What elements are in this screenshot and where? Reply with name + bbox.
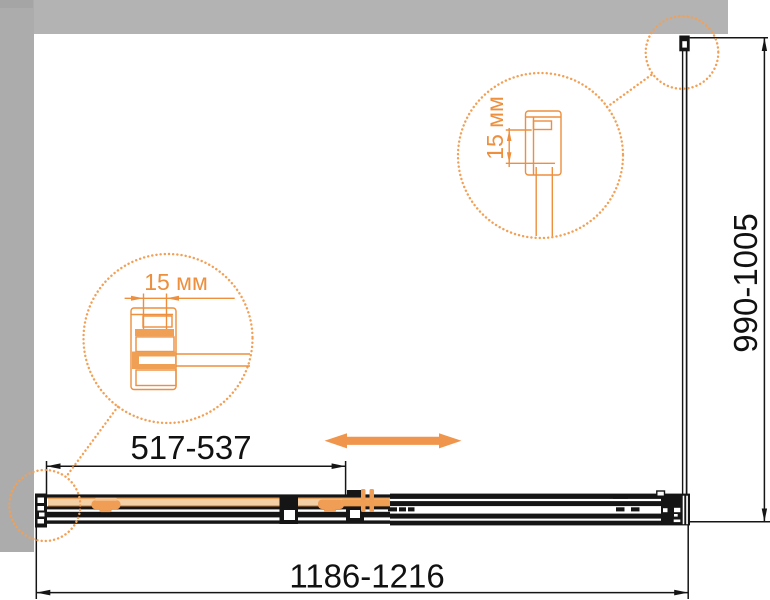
svg-text:990-1005: 990-1005 bbox=[727, 213, 764, 352]
svg-text:15 мм: 15 мм bbox=[482, 96, 508, 160]
svg-text:1186-1216: 1186-1216 bbox=[289, 558, 444, 595]
svg-text:15 мм: 15 мм bbox=[144, 269, 208, 295]
svg-text:517-537: 517-537 bbox=[130, 429, 251, 466]
